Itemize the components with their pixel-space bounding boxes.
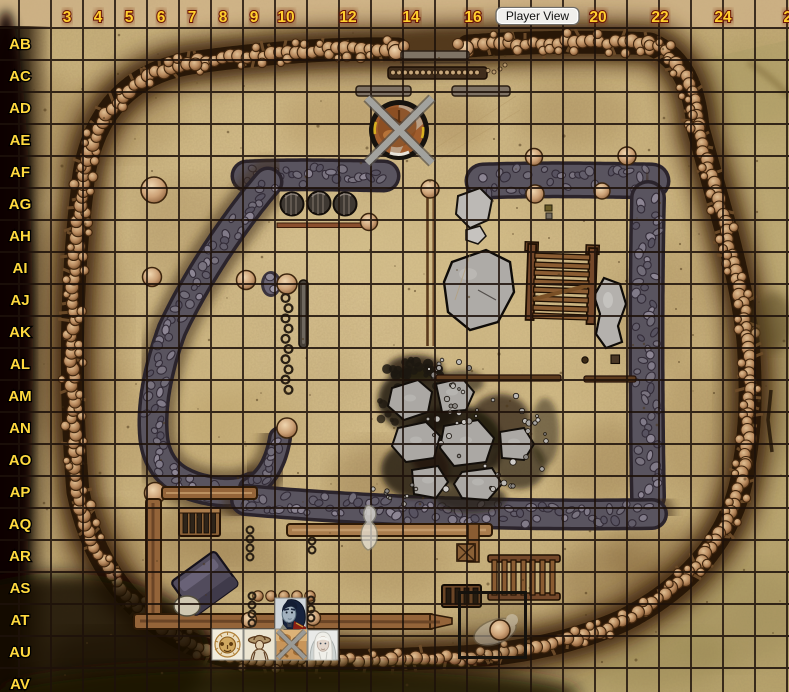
svg-text:6: 6 [157, 9, 166, 26]
svg-text:AN: AN [9, 420, 31, 437]
svg-text:AG: AG [9, 196, 32, 213]
svg-text:3: 3 [63, 9, 72, 26]
svg-text:8: 8 [219, 9, 228, 26]
svg-text:AT: AT [11, 612, 30, 629]
svg-text:10: 10 [277, 9, 294, 26]
svg-text:20: 20 [589, 9, 606, 26]
svg-text:7: 7 [188, 9, 197, 26]
svg-text:5: 5 [125, 9, 134, 26]
svg-text:AR: AR [9, 548, 31, 565]
svg-text:AB: AB [9, 36, 31, 53]
svg-text:AU: AU [9, 644, 31, 661]
svg-text:AM: AM [8, 388, 31, 405]
svg-text:AF: AF [10, 164, 30, 181]
svg-text:24: 24 [714, 9, 732, 26]
svg-text:AP: AP [10, 484, 31, 501]
svg-text:AS: AS [10, 580, 31, 597]
svg-text:AI: AI [13, 260, 28, 277]
svg-text:AD: AD [9, 100, 31, 117]
svg-text:AC: AC [9, 68, 31, 85]
svg-text:16: 16 [464, 9, 482, 26]
svg-text:AK: AK [9, 324, 31, 341]
svg-text:26: 26 [783, 9, 789, 26]
svg-text:22: 22 [651, 9, 668, 26]
svg-text:4: 4 [94, 9, 103, 26]
svg-text:12: 12 [339, 9, 356, 26]
svg-text:AQ: AQ [9, 516, 32, 533]
svg-text:14: 14 [402, 9, 420, 26]
svg-text:Player View: Player View [506, 9, 569, 23]
svg-text:AH: AH [9, 228, 31, 245]
svg-text:9: 9 [250, 9, 259, 26]
svg-text:AJ: AJ [10, 292, 29, 309]
svg-text:AV: AV [10, 676, 30, 692]
svg-text:AO: AO [9, 452, 32, 469]
svg-text:AE: AE [10, 132, 31, 149]
svg-text:AL: AL [10, 356, 30, 373]
